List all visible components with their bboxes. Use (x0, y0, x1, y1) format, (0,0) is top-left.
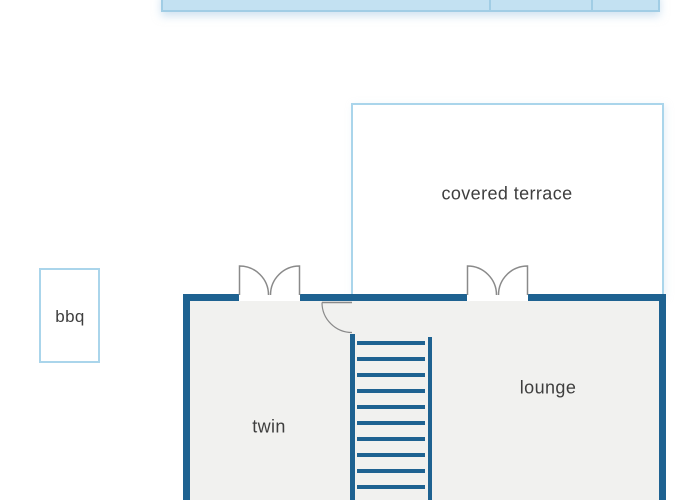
pool-strip-divider (591, 0, 593, 10)
wall-left (183, 294, 190, 500)
wall-top-left-segment (183, 294, 239, 301)
double-door-lounge (466, 264, 529, 296)
floor-plan: covered terrace bbq twin lounge (0, 0, 688, 500)
staircase-treads (357, 341, 425, 500)
label-bbq: bbq (55, 307, 85, 327)
pool-strip-divider (489, 0, 491, 10)
stair-left-wall (350, 334, 355, 500)
wall-top-right-segment (528, 294, 666, 301)
wall-right (659, 294, 666, 500)
single-door-stair-landing (321, 300, 355, 335)
label-lounge: lounge (520, 378, 576, 399)
stair-right-rail (428, 337, 432, 500)
label-covered-terrace: covered terrace (441, 184, 572, 205)
label-twin: twin (252, 417, 286, 438)
pool-strip (161, 0, 660, 12)
double-door-twin (238, 264, 301, 296)
